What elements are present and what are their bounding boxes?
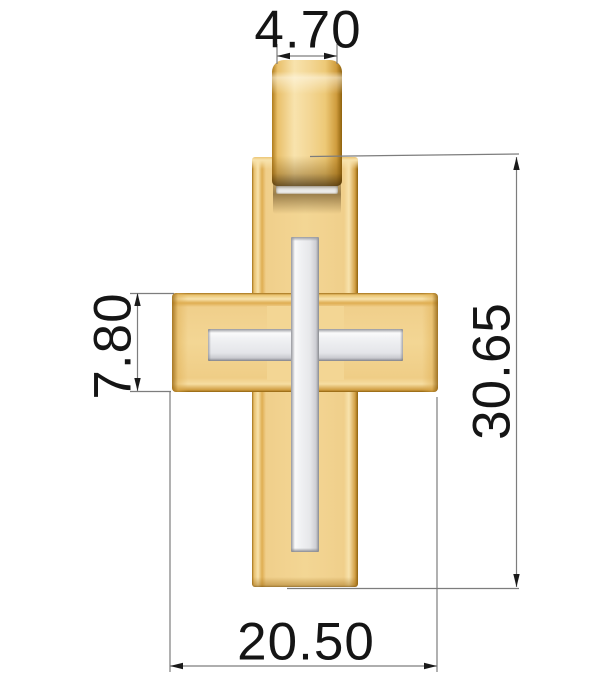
dimension-label-total-height: 30.65 (466, 302, 519, 440)
arrow-down-icon (513, 574, 519, 587)
dimension-label-cross-width: 20.50 (237, 616, 375, 669)
drawing-canvas: 4.70 7.80 30.65 20.50 (0, 0, 601, 684)
dimension-label-arm-height: 7.80 (87, 292, 140, 399)
arrow-up-icon (513, 157, 519, 170)
bail (272, 60, 342, 186)
dimension-label-bail-width: 4.70 (254, 4, 361, 57)
arrow-left-icon (170, 663, 183, 669)
arrow-right-icon (424, 663, 437, 669)
white-inlay-vertical-bar (291, 237, 319, 552)
